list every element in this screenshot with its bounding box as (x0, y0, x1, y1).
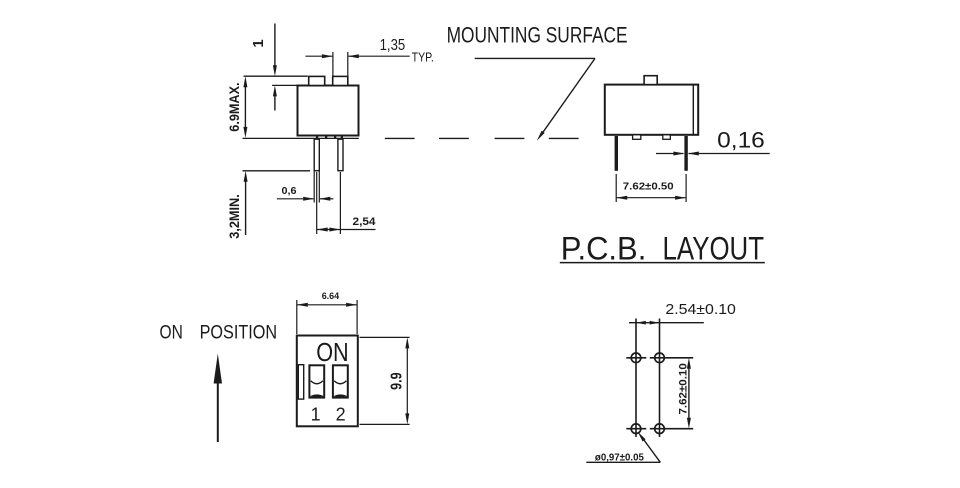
svg-text:2,54: 2,54 (353, 216, 377, 228)
svg-text:6.9MAX.: 6.9MAX. (226, 83, 242, 132)
svg-text:TYP.: TYP. (412, 50, 434, 64)
svg-text:2.54±0.10: 2.54±0.10 (665, 301, 736, 318)
svg-text:LAYOUT: LAYOUT (663, 230, 765, 266)
svg-text:P.C.B.: P.C.B. (561, 230, 647, 266)
svg-text:0,16: 0,16 (717, 128, 765, 153)
svg-text:ON: ON (160, 322, 183, 343)
svg-text:POSITION: POSITION (200, 322, 278, 343)
svg-text:MOUNTING SURFACE: MOUNTING SURFACE (447, 23, 628, 48)
svg-text:2: 2 (336, 405, 346, 425)
svg-text:ON: ON (316, 337, 349, 367)
svg-text:1: 1 (250, 39, 267, 47)
svg-text:9.9: 9.9 (389, 372, 406, 390)
svg-text:3,2MIN.: 3,2MIN. (226, 194, 242, 239)
svg-text:0,6: 0,6 (282, 186, 297, 197)
svg-text:1: 1 (311, 405, 321, 425)
svg-text:7.62±0.10: 7.62±0.10 (678, 363, 690, 414)
svg-text:7.62±0.50: 7.62±0.50 (623, 182, 674, 193)
svg-text:1,35: 1,35 (380, 37, 406, 54)
svg-text:6.64: 6.64 (322, 291, 340, 302)
svg-text:ø0,97±0.05: ø0,97±0.05 (595, 453, 644, 464)
